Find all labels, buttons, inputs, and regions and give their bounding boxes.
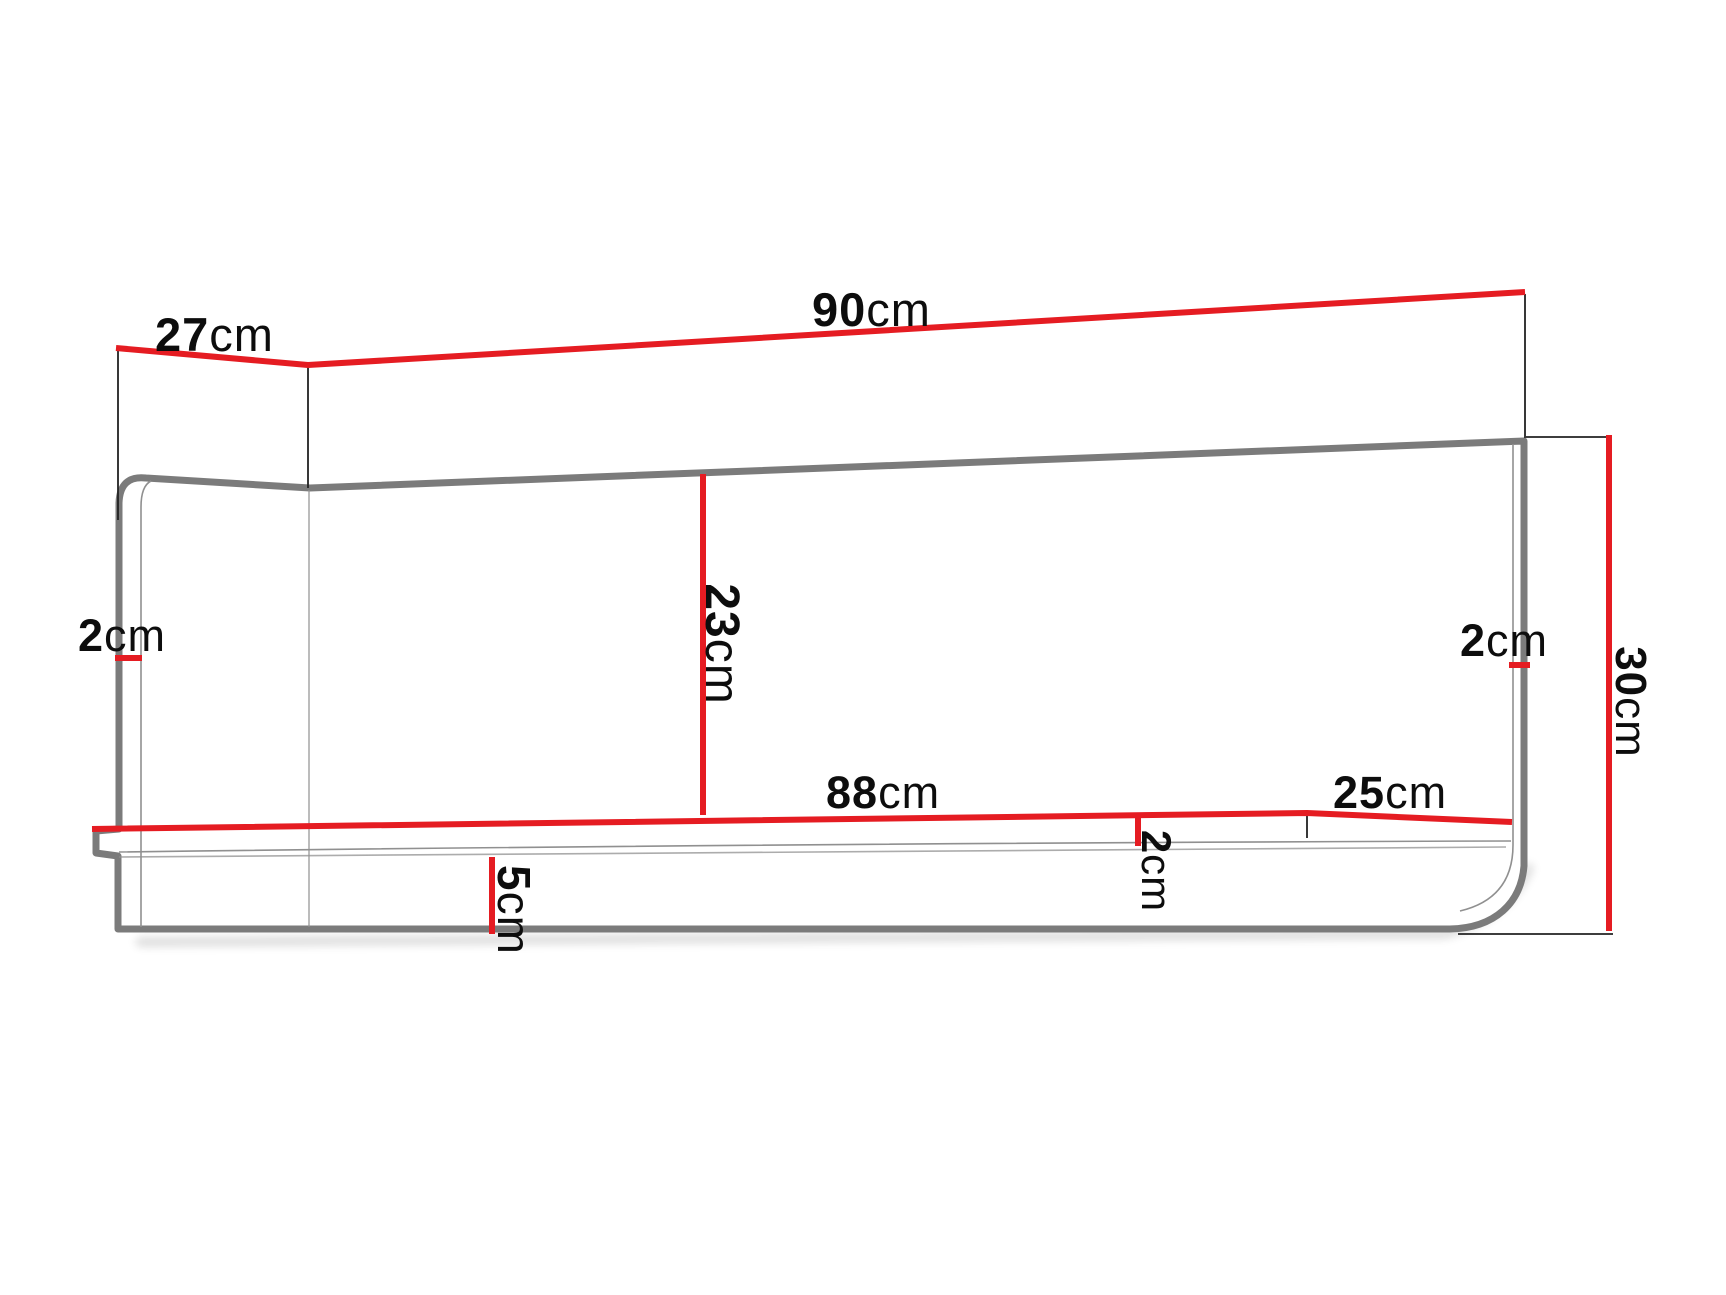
dim-label-left-panel-thickness: 2cm [78, 610, 166, 661]
dim-label-total-height: 30cm [1606, 646, 1655, 758]
dim-label-back-inner-height: 23cm [695, 583, 748, 704]
dim-label-shelf-depth: 25cm [1333, 767, 1447, 818]
furniture [96, 441, 1524, 929]
dimension-diagram-page: 27cm 90cm 2cm 23cm 2cm 30cm 88cm 25cm 2c… [0, 0, 1726, 1295]
dim-label-width-top: 90cm [812, 283, 931, 336]
dim-label-shelf-thickness: 2cm [1133, 830, 1180, 912]
dim-label-depth-top: 27cm [155, 308, 274, 361]
wall-shelf-dimension-diagram: 27cm 90cm 2cm 23cm 2cm 30cm 88cm 25cm 2c… [0, 0, 1726, 1295]
dim-label-front-rail-height: 5cm [488, 865, 540, 955]
dim-label-shelf-width: 88cm [826, 767, 940, 818]
dim-label-right-panel-thickness: 2cm [1460, 615, 1548, 666]
